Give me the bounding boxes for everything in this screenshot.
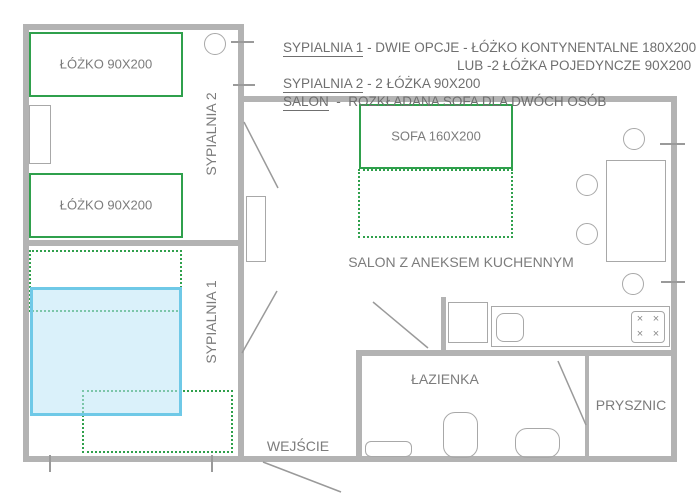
label-bedroom2: SYPIALNIA 2: [203, 92, 219, 175]
label-living-room: SALON Z ANEKSEM KUCHENNYM: [348, 254, 574, 270]
legend-line-4: SALON - ROZKŁADANA SOFA DLA DWÓCH OSÓB: [268, 79, 606, 124]
legend-rest-salon: - ROZKŁADANA SOFA DLA DWÓCH OSÓB: [329, 94, 607, 109]
wall-top: [23, 24, 244, 30]
chair-bottom: [622, 273, 644, 295]
burner-icon: ×: [653, 314, 659, 325]
chair-left-1: [576, 174, 598, 196]
label-entrance: WEJŚCIE: [267, 438, 329, 454]
label-shower: PRYSZNIC: [596, 397, 667, 413]
continental-bed-180x200: [30, 287, 182, 416]
washbasin: [515, 428, 560, 458]
label-bed-top: ŁÓŻKO 90X200: [60, 57, 153, 72]
label-bed-bottom: ŁÓŻKO 90X200: [60, 198, 153, 213]
toilet: [443, 412, 478, 458]
door-leaf: [246, 196, 266, 262]
burner-icon: ×: [653, 329, 659, 340]
door-swing-bathroom: [373, 302, 428, 348]
wall-shower-divider: [585, 356, 589, 462]
door-swing-living: [244, 122, 278, 188]
kitchen-sink: [496, 313, 524, 342]
wall-bottom: [23, 456, 677, 462]
burner-icon: ×: [637, 329, 643, 340]
chair-left-2: [576, 223, 598, 245]
label-bedroom1: SYPIALNIA 1: [203, 280, 219, 363]
door-swing-shower: [558, 361, 586, 425]
chair-top: [623, 128, 645, 150]
wall-bathroom-left: [356, 350, 362, 462]
door-swing-bedroom1: [242, 291, 277, 353]
lamp-circle: [204, 33, 226, 55]
sofa-extension-dotted: [358, 169, 513, 238]
legend-line2-text: LUB -2 ŁÓŻKA POJEDYNCZE 90X200: [457, 58, 691, 73]
nightstand: [29, 105, 51, 164]
wall-bathroom-top: [356, 350, 677, 356]
burner-icon: ×: [637, 314, 643, 325]
wall-right: [671, 96, 677, 462]
fridge: [448, 302, 488, 343]
dining-table: [606, 160, 666, 262]
door-swing-entrance: [263, 462, 341, 492]
stove-burners: × × × ×: [632, 312, 664, 342]
legend-term-salon: SALON: [283, 94, 329, 111]
wall-kitchen-divider: [441, 297, 446, 353]
legend-term-bedroom1: SYPIALNIA 1: [283, 40, 363, 57]
stove: × × × ×: [631, 311, 665, 343]
floor-plan: × × × × SYPIALNIA 1 - DWIE OPCJE - ŁÓŻKO…: [0, 0, 700, 500]
wall-bedroom-divider: [23, 240, 244, 246]
label-bathroom: ŁAZIENKA: [411, 371, 479, 387]
wall-main-vertical: [238, 24, 244, 462]
label-sofa: SOFA 160X200: [391, 129, 481, 144]
bathroom-radiator: [365, 441, 412, 457]
